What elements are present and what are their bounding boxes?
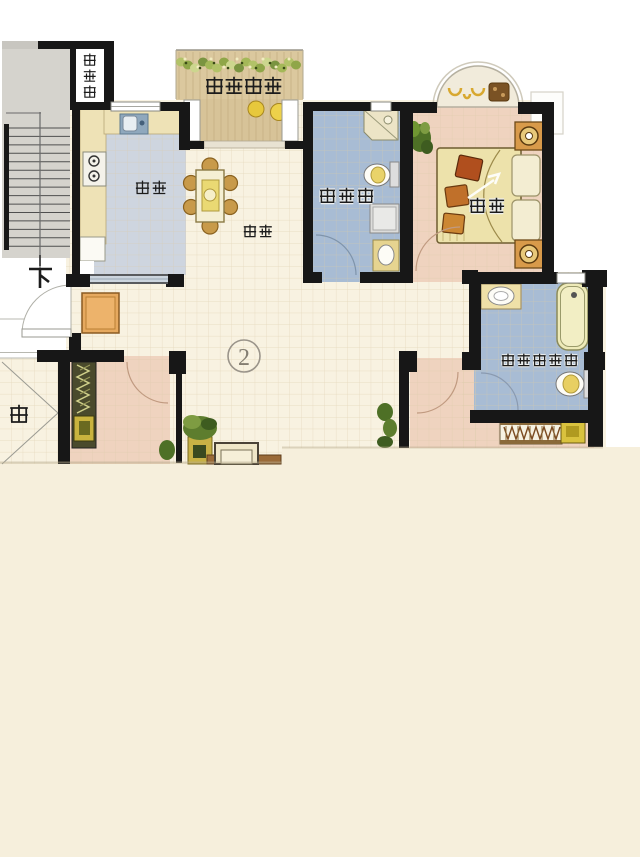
svg-text:2: 2: [238, 345, 250, 371]
